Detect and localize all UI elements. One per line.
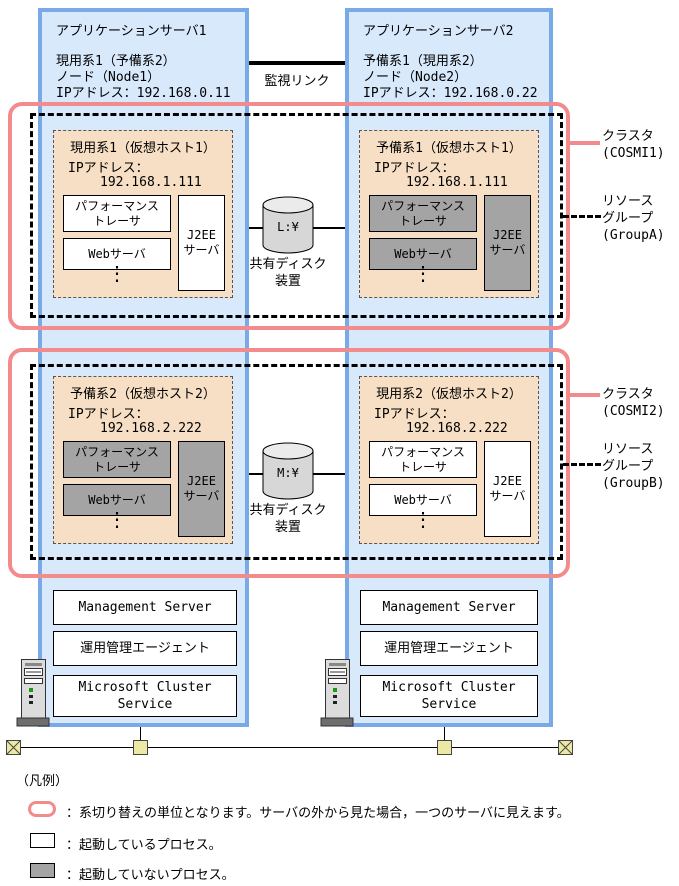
ip-label: IPアドレス：: [68, 157, 149, 176]
virtual-host-title: 現用系2（仮想ホスト2）: [360, 377, 538, 402]
virtual-host-active2: 現用系2（仮想ホスト2） IPアドレス： 192.168.2.222 パフォーマ…: [359, 376, 539, 544]
cluster-label-line: クラスタ: [602, 128, 665, 145]
process-label: Webサーバ: [394, 247, 452, 262]
process-label: パフォーマンス: [381, 445, 465, 460]
disk-label-line: 装置: [240, 519, 336, 536]
ellipsis: ⋮: [403, 263, 443, 283]
server-ip: IPアドレス：192.168.0.22: [363, 86, 538, 102]
process-label: パフォーマンス: [75, 445, 159, 460]
process-label: パフォーマンス: [75, 199, 159, 214]
ellipsis: ⋮: [97, 263, 137, 283]
group-label-line: リソース: [602, 193, 665, 210]
process-label: サーバ: [490, 243, 526, 258]
network-terminator-icon: [6, 740, 21, 759]
server-node: ノード（Node2）: [363, 70, 538, 86]
disk-drive-letter: M:¥: [240, 466, 336, 480]
virtual-host-title: 予備系1（仮想ホスト1）: [360, 131, 538, 156]
process-box-j2ee-server: J2EE サーバ: [178, 195, 225, 291]
disk-label: 共有ディスク 装置: [240, 502, 336, 536]
process-label: トレーサ: [93, 214, 141, 229]
virtual-host-standby2: 予備系2（仮想ホスト2） IPアドレス： 192.168.2.222 パフォーマ…: [53, 376, 233, 544]
network-line: [21, 747, 558, 748]
process-label: Webサーバ: [394, 493, 452, 508]
cluster-diagram: アプリケーションサーバ1 現用系1（予備系2） ノード（Node1） IPアドレ…: [0, 0, 679, 886]
process-box-j2ee-server: J2EE サーバ: [484, 195, 531, 291]
process-box-performance-tracer: パフォーマンス トレーサ: [63, 195, 171, 232]
legend-cluster-outline-symbol: [28, 801, 56, 817]
ms-cluster-service-box: Microsoft Cluster Service: [53, 675, 237, 717]
ellipsis: ⋮: [97, 509, 137, 529]
ms-cluster-service-box: Microsoft Cluster Service: [360, 675, 538, 717]
process-label: サーバ: [184, 243, 220, 258]
cluster-label-line: (COSMI1): [602, 145, 665, 162]
ip-value: 192.168.1.111: [406, 175, 508, 190]
group-label-connector: [563, 215, 601, 218]
management-server-box: Management Server: [53, 590, 237, 625]
server-title: アプリケーションサーバ1: [56, 24, 231, 40]
virtual-host-title: 予備系2（仮想ホスト2）: [54, 377, 232, 402]
process-label: J2EE: [493, 228, 522, 243]
legend-item-text: ：起動しているプロセス。: [66, 834, 222, 853]
resource-group-label-groupa: リソース グループ (GroupA): [602, 193, 665, 244]
resource-group-label-groupb: リソース グループ (GroupB): [602, 441, 665, 492]
cluster-label-connector: [570, 141, 600, 145]
process-label: J2EE: [493, 474, 522, 489]
operations-agent-box: 運用管理エージェント: [360, 631, 538, 666]
virtual-host-title: 現用系1（仮想ホスト1）: [54, 131, 232, 156]
ip-value: 192.168.2.222: [100, 421, 202, 436]
group-label-line: (GroupA): [602, 227, 665, 244]
monitor-link-label: 監視リンク: [245, 70, 349, 89]
cluster-label-cosmi1: クラスタ (COSMI1): [602, 128, 665, 162]
legend-item-text: ：起動していないプロセス。: [66, 864, 235, 883]
management-server-box: Management Server: [360, 590, 538, 625]
cluster-label-line: (COSMI2): [602, 403, 665, 420]
ip-value: 192.168.2.222: [406, 421, 508, 436]
network-terminator-icon: [558, 740, 573, 759]
legend-running-process-symbol: [30, 833, 55, 848]
network-stub-line: [140, 727, 141, 740]
ip-value: 192.168.1.111: [100, 175, 202, 190]
disk-label-line: 共有ディスク: [240, 502, 336, 519]
network-connector-node: [133, 740, 148, 755]
legend-title: （凡例）: [16, 770, 68, 789]
server-1-header: アプリケーションサーバ1 現用系1（予備系2） ノード（Node1） IPアドレ…: [56, 24, 231, 102]
shared-disk-m: M:¥ 共有ディスク 装置: [240, 442, 336, 536]
cluster-label-connector: [570, 393, 600, 397]
cluster-label-line: クラスタ: [602, 386, 665, 403]
process-label: Webサーバ: [88, 493, 146, 508]
virtual-host-standby1: 予備系1（仮想ホスト1） IPアドレス： 192.168.1.111 パフォーマ…: [359, 130, 539, 298]
server-2-header: アプリケーションサーバ2 予備系1（現用系2） ノード（Node2） IPアドレ…: [363, 24, 538, 102]
server-tower-icon: [16, 658, 50, 732]
ellipsis: ⋮: [403, 509, 443, 529]
network-connector-node: [437, 740, 452, 755]
process-label: Webサーバ: [88, 247, 146, 262]
legend-stopped-process-symbol: [30, 863, 55, 878]
disk-label-line: 装置: [240, 273, 336, 290]
server-ip: IPアドレス：192.168.0.11: [56, 86, 231, 102]
process-label: トレーサ: [399, 460, 447, 475]
process-label: J2EE: [187, 474, 216, 489]
group-label-line: グループ: [602, 458, 665, 475]
server-role: 現用系1（予備系2）: [56, 54, 231, 70]
ip-label: IPアドレス：: [374, 157, 455, 176]
server-tower-icon: [320, 658, 354, 732]
process-box-j2ee-server: J2EE サーバ: [178, 441, 225, 537]
group-label-connector: [563, 463, 601, 466]
cluster-label-cosmi2: クラスタ (COSMI2): [602, 386, 665, 420]
operations-agent-box: 運用管理エージェント: [53, 631, 237, 666]
process-label: トレーサ: [93, 460, 141, 475]
server-node: ノード（Node1）: [56, 70, 231, 86]
process-box-j2ee-server: J2EE サーバ: [484, 441, 531, 537]
process-box-performance-tracer: パフォーマンス トレーサ: [63, 441, 171, 478]
monitor-link-line: [249, 61, 345, 65]
process-box-performance-tracer: パフォーマンス トレーサ: [369, 195, 477, 232]
server-title: アプリケーションサーバ2: [363, 24, 538, 40]
process-label: トレーサ: [399, 214, 447, 229]
network-stub-line: [444, 727, 445, 740]
process-box-performance-tracer: パフォーマンス トレーサ: [369, 441, 477, 478]
legend-item-text: ：系切り替えの単位となります。サーバの外から見た場合，一つのサーバに見えます。: [66, 802, 570, 821]
group-label-line: (GroupB): [602, 475, 665, 492]
disk-label-line: 共有ディスク: [240, 256, 336, 273]
process-label: J2EE: [187, 228, 216, 243]
virtual-host-active1: 現用系1（仮想ホスト1） IPアドレス： 192.168.1.111 パフォーマ…: [53, 130, 233, 298]
process-label: パフォーマンス: [381, 199, 465, 214]
disk-label: 共有ディスク 装置: [240, 256, 336, 290]
ip-label: IPアドレス：: [68, 403, 149, 422]
ip-label: IPアドレス：: [374, 403, 455, 422]
process-label: サーバ: [184, 489, 220, 504]
server-role: 予備系1（現用系2）: [363, 54, 538, 70]
group-label-line: リソース: [602, 441, 665, 458]
shared-disk-l: L:¥ 共有ディスク 装置: [240, 196, 336, 290]
process-label: サーバ: [490, 489, 526, 504]
group-label-line: グループ: [602, 210, 665, 227]
disk-drive-letter: L:¥: [240, 220, 336, 234]
